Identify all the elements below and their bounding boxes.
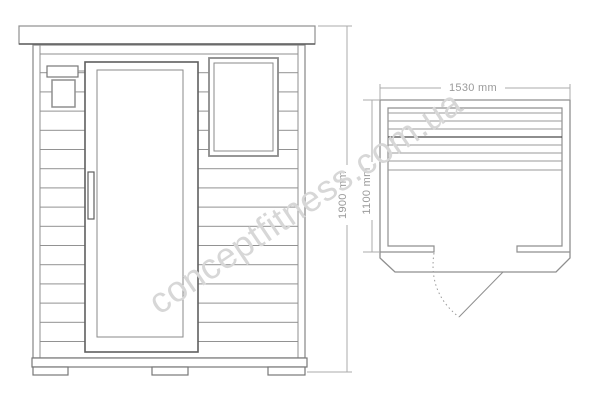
door-handle <box>88 172 94 219</box>
foot-left <box>33 367 68 375</box>
technical-drawing-canvas: 1900 mm <box>0 0 600 400</box>
base-plate <box>32 358 307 367</box>
control-display <box>47 66 78 77</box>
window-inner-frame <box>214 63 273 151</box>
sauna-drawing: 1900 mm <box>0 0 600 400</box>
roof-slab <box>19 26 315 44</box>
foot-middle <box>152 367 188 375</box>
width-dimension-label: 1530 mm <box>449 82 497 94</box>
control-panel <box>52 80 75 107</box>
foot-right <box>268 367 305 375</box>
width-dimension: 1530 mm <box>380 82 570 100</box>
door-swing-panel-line <box>459 272 503 317</box>
